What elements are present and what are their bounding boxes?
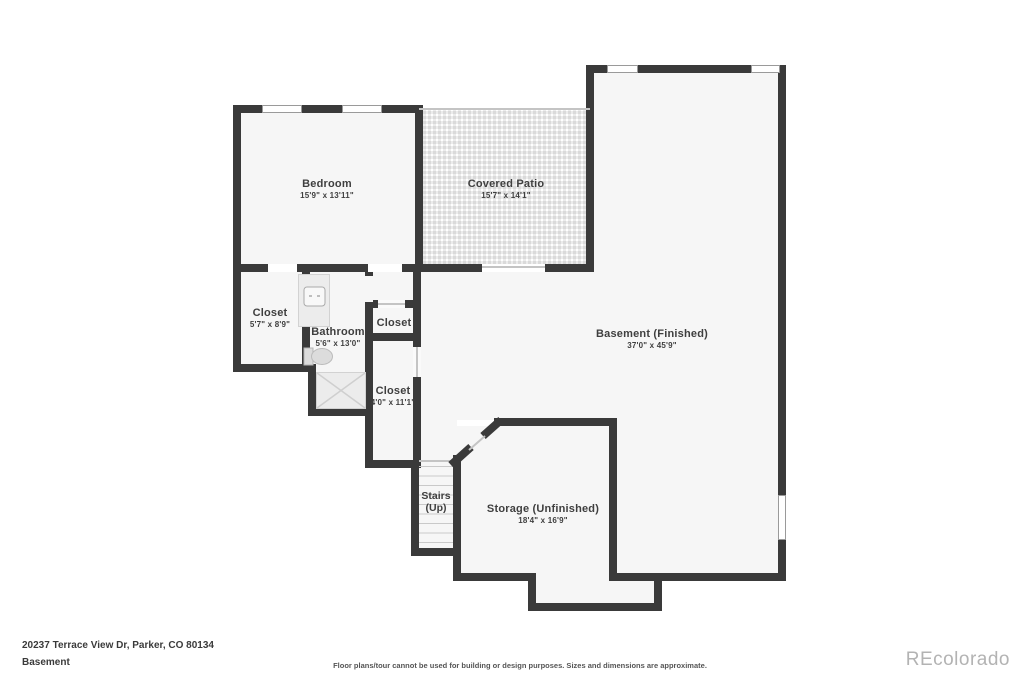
closet-small-door-line xyxy=(378,303,405,305)
bathroom-dims: 5'6" x 13'0" xyxy=(311,339,365,348)
wall-bedroom-patio-divider xyxy=(415,105,423,272)
recolorado-watermark: REcolorado xyxy=(906,649,1010,671)
stairs-name: Stairs xyxy=(421,490,450,502)
bedroom-name: Bedroom xyxy=(300,178,354,190)
basement-floor-lower-right xyxy=(613,420,778,573)
wall-bedroom-bottom-1 xyxy=(233,264,268,272)
floor-level-label: Basement xyxy=(22,657,70,668)
basement-window-1 xyxy=(607,65,638,73)
stairs-direction: (Up) xyxy=(421,502,450,514)
stairs-top-edge xyxy=(419,460,453,462)
basement-window-2 xyxy=(751,65,780,73)
closet-left-name: Closet xyxy=(250,307,290,319)
wall-stairs-right-storage-left xyxy=(453,455,461,581)
stairs-label: Stairs (Up) xyxy=(421,490,450,514)
wall-patio-right-basement-left xyxy=(586,65,594,272)
wall-stairs-left xyxy=(411,460,419,552)
wall-bedroom-bottom-2 xyxy=(297,264,368,272)
wall-storage-right xyxy=(609,418,617,581)
wall-patio-bottom-left xyxy=(415,264,482,272)
closet-left-dims: 5'7" x 8'9" xyxy=(250,320,290,329)
closet-tall-name: Closet xyxy=(371,385,416,397)
closet-tall-dims: 4'0" x 11'1" xyxy=(371,398,416,407)
wall-bedroom-left xyxy=(233,105,241,372)
bedroom-window-1 xyxy=(262,105,302,113)
covered-patio-dims: 15'7" x 14'1" xyxy=(468,191,545,200)
wall-bathroom-bottom xyxy=(308,408,373,416)
basement-dims: 37'0" x 45'9" xyxy=(596,341,708,350)
wall-storage-bottom-left xyxy=(453,573,536,581)
bedroom-window-2 xyxy=(342,105,382,113)
closet-left-label: Closet 5'7" x 8'9" xyxy=(250,307,290,329)
basement-floor-above-stairs xyxy=(421,420,457,461)
covered-patio-name: Covered Patio xyxy=(468,178,545,190)
closet-tall-door-line xyxy=(416,347,418,377)
basement-label: Basement (Finished) 37'0" x 45'9" xyxy=(596,328,708,350)
closet-tall-label: Closet 4'0" x 11'1" xyxy=(371,385,416,407)
wall-closet-left-bottom xyxy=(233,364,310,372)
patio-open-edge xyxy=(419,108,590,110)
floorplan-page: Bedroom 15'9" x 13'11" Covered Patio 15'… xyxy=(0,0,1020,680)
disclaimer-text: Floor plans/tour cannot be used for buil… xyxy=(300,661,740,670)
bathroom-label: Bathroom 5'6" x 13'0" xyxy=(311,326,365,348)
vanity-counter xyxy=(298,274,330,327)
wall-basement-bottom xyxy=(609,573,786,581)
basement-floor-upper xyxy=(594,73,778,272)
covered-patio-label: Covered Patio 15'7" x 14'1" xyxy=(468,178,545,200)
wall-storage-top xyxy=(494,418,617,426)
wall-storage-notch-bottom xyxy=(528,603,662,611)
closet-small-label: Closet xyxy=(377,317,412,329)
bedroom-label: Bedroom 15'9" x 13'11" xyxy=(300,178,354,200)
storage-dims: 18'4" x 16'9" xyxy=(487,516,599,525)
storage-name: Storage (Unfinished) xyxy=(487,503,599,515)
storage-label: Storage (Unfinished) 18'4" x 16'9" xyxy=(487,503,599,525)
property-address: 20237 Terrace View Dr, Parker, CO 80134 xyxy=(22,640,214,651)
bedroom-dims: 15'9" x 13'11" xyxy=(300,191,354,200)
wall-storage-notch-right xyxy=(654,577,662,611)
closet-small-name: Closet xyxy=(377,317,412,329)
basement-name: Basement (Finished) xyxy=(596,328,708,340)
bathroom-door-gap xyxy=(365,276,373,302)
storage-floor xyxy=(457,426,609,573)
wall-bathroom-right xyxy=(365,302,373,464)
wall-closets-right-upper xyxy=(413,272,421,347)
wall-patio-bottom-right xyxy=(545,264,594,272)
patio-slider-door xyxy=(482,266,545,268)
shower-pan xyxy=(316,372,366,409)
basement-window-right xyxy=(778,495,786,540)
bathroom-name: Bathroom xyxy=(311,326,365,338)
